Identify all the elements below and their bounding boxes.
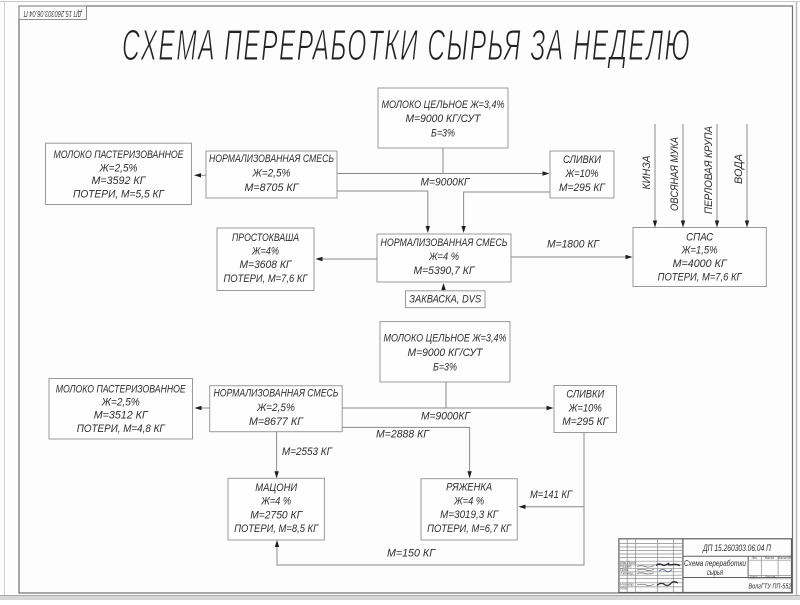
- svg-text:Ж=10%: Ж=10%: [565, 168, 599, 180]
- svg-text:М=141 КГ: М=141 КГ: [530, 489, 573, 501]
- svg-text:М=2888 КГ: М=2888 КГ: [376, 429, 430, 441]
- svg-text:Масштаб: Масштаб: [778, 556, 792, 560]
- svg-text:МАЦОНИ: МАЦОНИ: [255, 482, 297, 494]
- svg-text:М=1800 КГ: М=1800 КГ: [547, 239, 600, 251]
- svg-text:Б=3%: Б=3%: [433, 361, 457, 373]
- svg-text:ВолгГТУ ПП-552: ВолгГТУ ПП-552: [749, 581, 793, 590]
- svg-text:М=2553 КГ: М=2553 КГ: [282, 446, 333, 458]
- svg-text:МОЛОКО ПАСТЕРИЗОВАННОЕ: МОЛОКО ПАСТЕРИЗОВАННОЕ: [54, 149, 185, 161]
- svg-text:ЗАКВАСКА, DVS: ЗАКВАСКА, DVS: [409, 293, 482, 305]
- svg-text:Масса: Масса: [765, 556, 775, 560]
- svg-text:М=150 КГ: М=150 КГ: [387, 547, 436, 559]
- svg-text:Ж=2,5%: Ж=2,5%: [99, 162, 138, 174]
- svg-text:Лит.: Лит.: [752, 556, 758, 560]
- svg-text:сырья: сырья: [707, 567, 723, 577]
- svg-text:ПОТЕРИ, М=7,6 КГ: ПОТЕРИ, М=7,6 КГ: [658, 271, 743, 283]
- svg-text:СЛИВКИ: СЛИВКИ: [566, 388, 604, 400]
- svg-text:М=9000КГ: М=9000КГ: [421, 177, 471, 189]
- svg-text:Б=3%: Б=3%: [431, 127, 455, 139]
- svg-text:ПОТЕРИ, М=7,6 КГ: ПОТЕРИ, М=7,6 КГ: [224, 273, 309, 285]
- svg-text:МОЛОКО ПАСТЕРИЗОВАННОЕ: МОЛОКО ПАСТЕРИЗОВАННОЕ: [56, 384, 187, 396]
- svg-text:М=8677 КГ: М=8677 КГ: [249, 416, 304, 428]
- svg-text:М=295 КГ: М=295 КГ: [559, 182, 606, 194]
- svg-text:МОЛОКО ЦЕЛЬНОЕ Ж=3,4%: МОЛОКО ЦЕЛЬНОЕ Ж=3,4%: [384, 333, 507, 345]
- svg-text:Ж=4%: Ж=4%: [251, 245, 279, 257]
- svg-text:М=3592 КГ: М=3592 КГ: [92, 175, 147, 187]
- svg-text:Ж=4 %: Ж=4 %: [428, 251, 459, 263]
- svg-text:Утв.: Утв.: [620, 587, 628, 591]
- svg-text:Лист: Лист: [750, 575, 757, 579]
- svg-text:ВОДА: ВОДА: [733, 154, 745, 184]
- svg-text:Ж=2,5%: Ж=2,5%: [256, 402, 295, 414]
- svg-text:М=3608 КГ: М=3608 КГ: [240, 259, 293, 271]
- svg-text:Ж=4 %: Ж=4 %: [260, 496, 291, 508]
- svg-text:Т.контр.: Т.контр.: [620, 571, 634, 575]
- svg-text:РЯЖЕНКА: РЯЖЕНКА: [446, 482, 492, 494]
- svg-text:КИНЗА: КИНЗА: [641, 156, 653, 190]
- svg-text:ПОТЕРИ, М=8,5 КГ: ПОТЕРИ, М=8,5 КГ: [234, 523, 319, 535]
- svg-text:СЛИВКИ: СЛИВКИ: [563, 154, 601, 166]
- svg-text:ПОТЕРИ, М=5,5 КГ: ПОТЕРИ, М=5,5 КГ: [73, 189, 165, 201]
- svg-text:ДП 15.260303.06.04 П: ДП 15.260303.06.04 П: [702, 543, 771, 554]
- svg-text:М=9000КГ: М=9000КГ: [421, 410, 471, 422]
- svg-text:СПАС: СПАС: [686, 231, 713, 243]
- svg-text:ПРОСТОКВАША: ПРОСТОКВАША: [232, 232, 299, 244]
- svg-text:НОРМАЛИЗОВАННАЯ СМЕСЬ: НОРМАЛИЗОВАННАЯ СМЕСЬ: [381, 237, 508, 249]
- svg-text:М=9000 КГ/СУТ: М=9000 КГ/СУТ: [408, 347, 484, 359]
- svg-text:Ж=2,5%: Ж=2,5%: [252, 167, 291, 179]
- svg-text:НОРМАЛИЗОВАННАЯ СМЕСЬ: НОРМАЛИЗОВАННАЯ СМЕСЬ: [209, 153, 334, 165]
- svg-text:Ж=2,5%: Ж=2,5%: [101, 397, 140, 409]
- svg-text:ПОТЕРИ, М=6,7 КГ: ПОТЕРИ, М=6,7 КГ: [427, 523, 512, 535]
- svg-text:М=5390,7 КГ: М=5390,7 КГ: [414, 265, 476, 277]
- svg-text:МОЛОКО ЦЕЛЬНОЕ Ж=3,4%: МОЛОКО ЦЕЛЬНОЕ Ж=3,4%: [382, 99, 505, 111]
- svg-text:СХЕМА ПЕРЕРАБОТКИ СЫРЬЯ ЗА НЕД: СХЕМА ПЕРЕРАБОТКИ СЫРЬЯ ЗА НЕДЕЛЮ: [122, 21, 691, 70]
- svg-text:ДП 15.260303.06.04 П: ДП 15.260303.06.04 П: [24, 9, 83, 18]
- svg-text:ПОТЕРИ, М=4,8 КГ: ПОТЕРИ, М=4,8 КГ: [77, 423, 166, 435]
- svg-text:М=2750 КГ: М=2750 КГ: [250, 510, 303, 522]
- svg-text:Ж=4 %: Ж=4 %: [453, 495, 484, 507]
- svg-text:Ж=10%: Ж=10%: [568, 402, 602, 414]
- svg-text:М=3512 КГ: М=3512 КГ: [94, 409, 149, 421]
- svg-text:М=9000 КГ/СУТ: М=9000 КГ/СУТ: [406, 113, 482, 125]
- svg-text:М=8705 КГ: М=8705 КГ: [245, 182, 300, 194]
- svg-text:ПЕРЛОВАЯ КРУПА: ПЕРЛОВАЯ КРУПА: [703, 126, 715, 214]
- svg-text:Ж=1,5%: Ж=1,5%: [681, 245, 718, 257]
- svg-text:НОРМАЛИЗОВАННАЯ СМЕСЬ: НОРМАЛИЗОВАННАЯ СМЕСЬ: [213, 388, 338, 400]
- svg-text:М=3019,3 КГ: М=3019,3 КГ: [440, 509, 499, 521]
- svg-text:М=295 КГ: М=295 КГ: [562, 416, 609, 428]
- svg-text:ОВСЯНАЯ МУКА: ОВСЯНАЯ МУКА: [669, 137, 681, 211]
- svg-text:Листов: Листов: [765, 575, 776, 579]
- svg-text:М=4000 КГ: М=4000 КГ: [673, 258, 728, 270]
